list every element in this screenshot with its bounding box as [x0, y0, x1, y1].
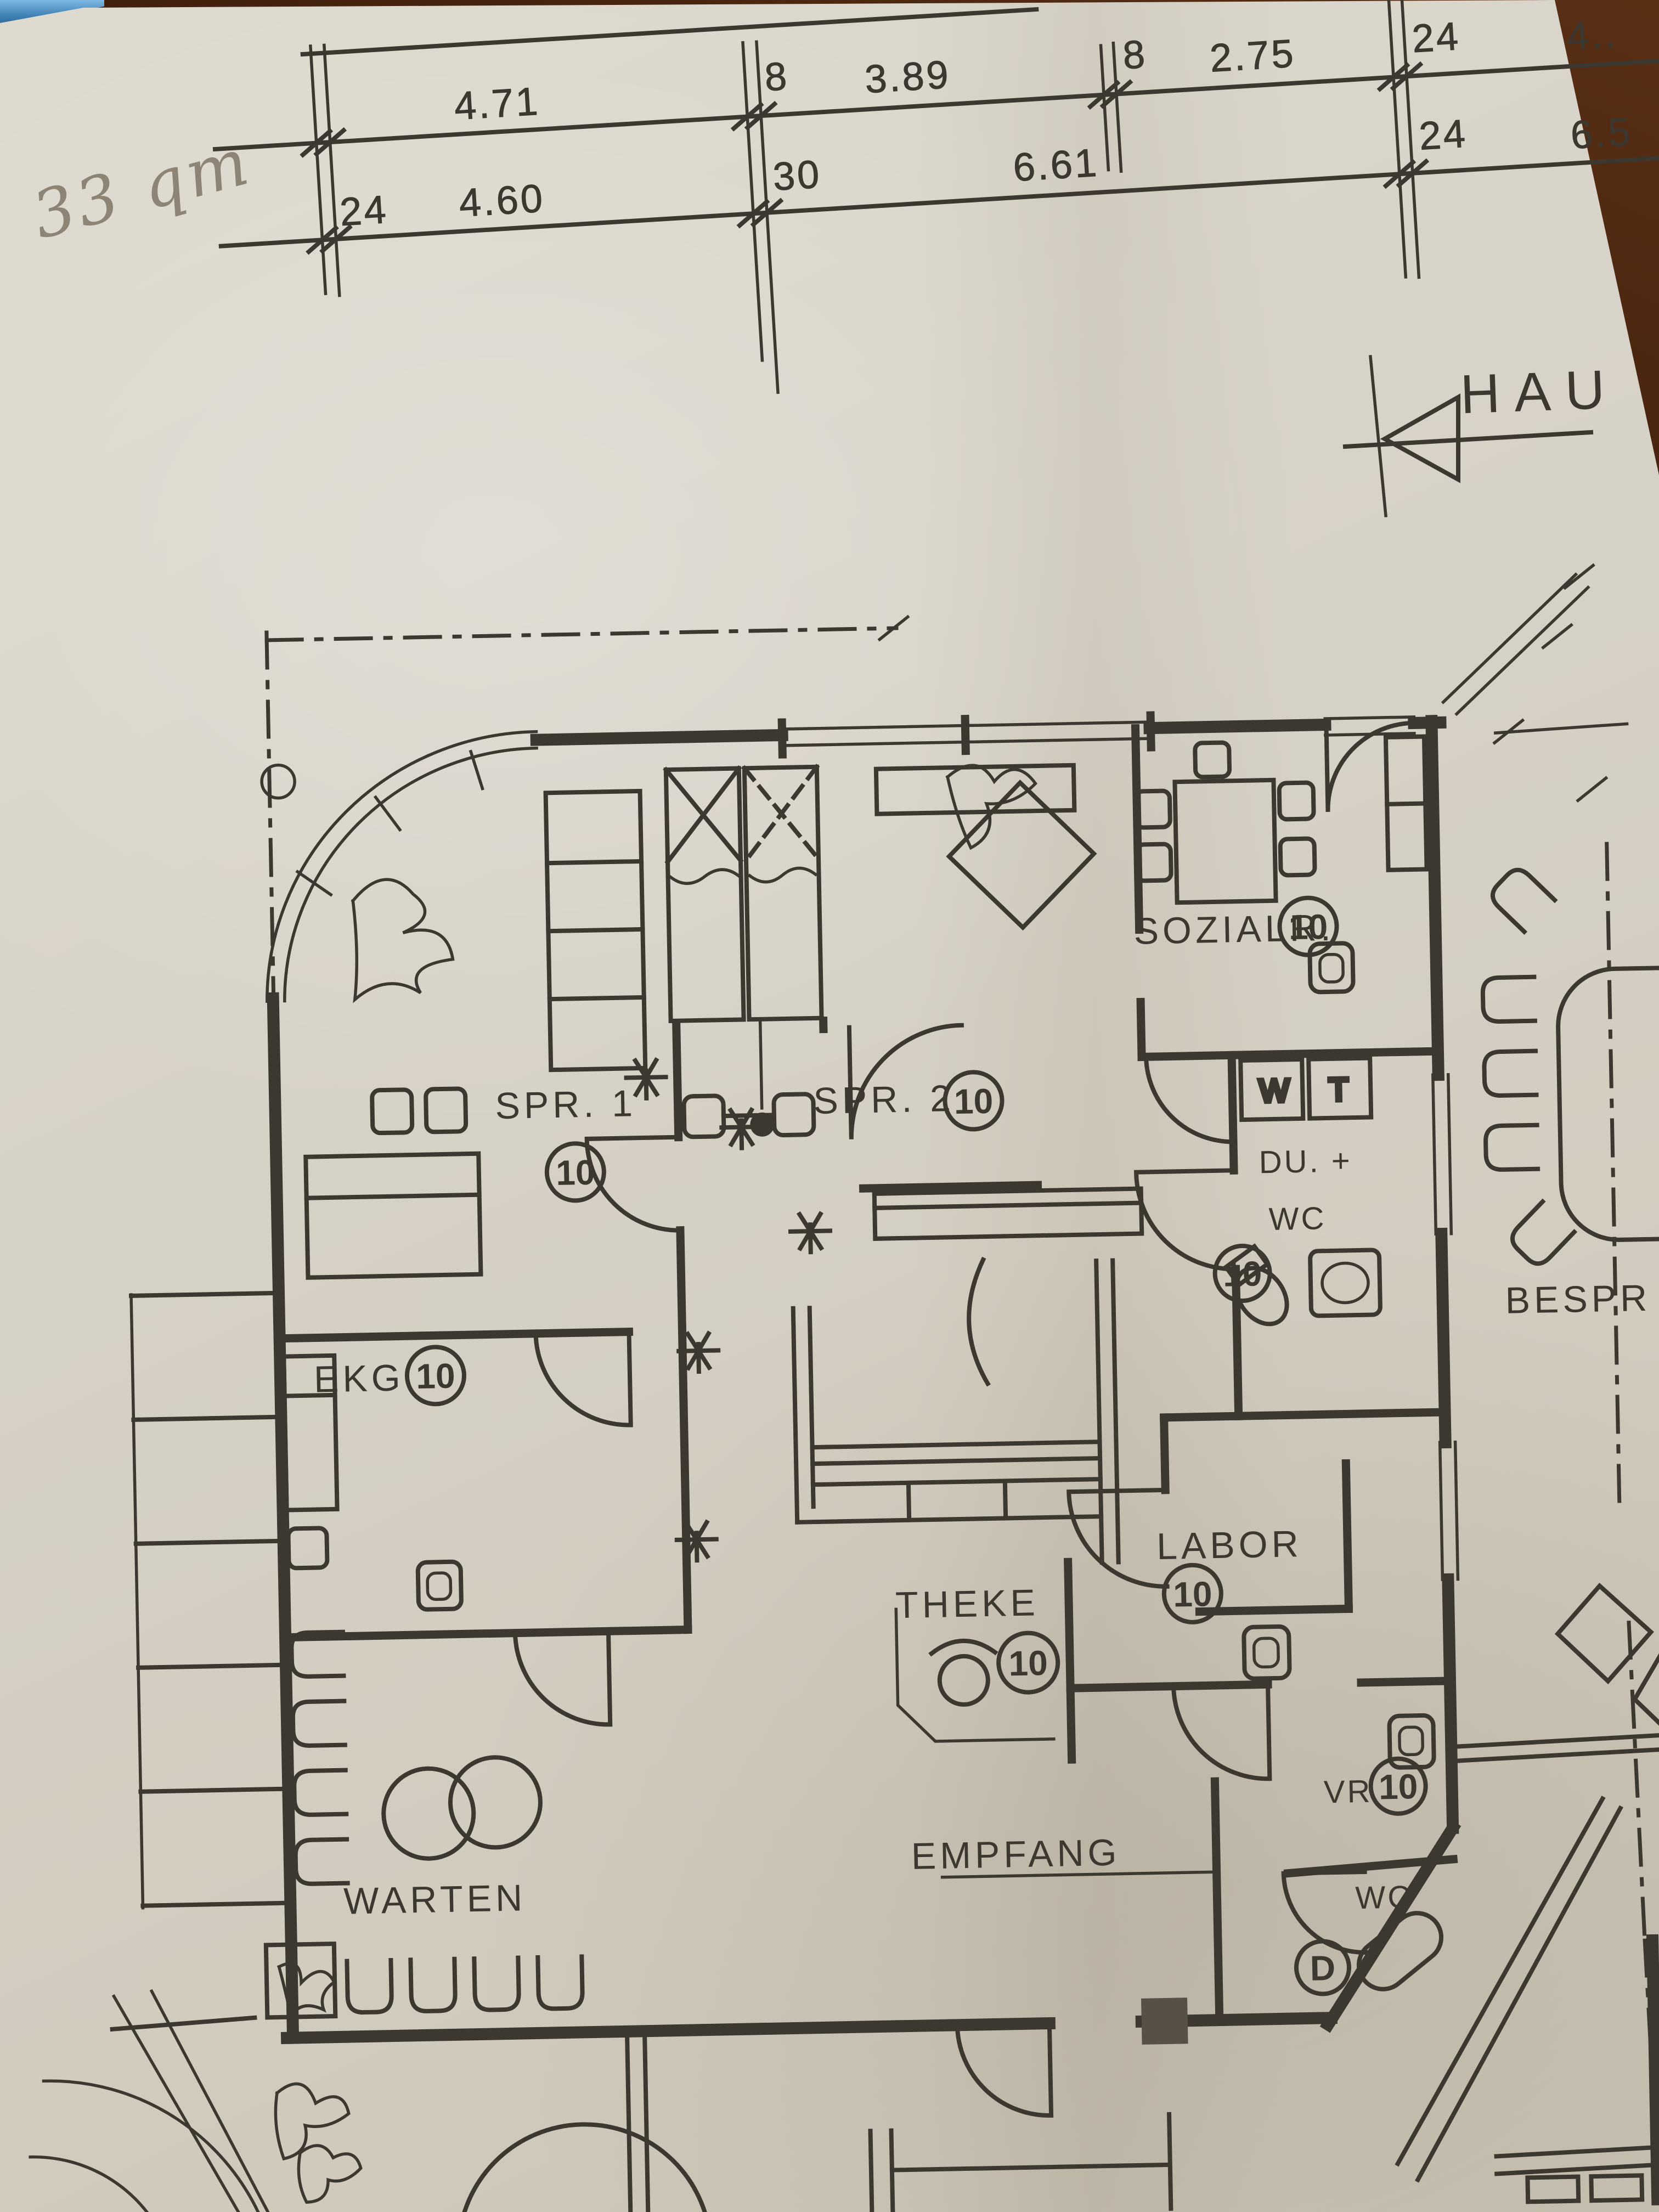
room-label-vr: VR — [1323, 1774, 1373, 1810]
room-label-du-wc: WC — [1268, 1200, 1327, 1237]
svg-text:10: 10 — [556, 1153, 596, 1193]
plant-sketch — [947, 764, 1037, 848]
room-label-bespr: BESPR — [1505, 1277, 1651, 1322]
floorplan-drawing: 4.71 8 3.89 8 2.75 24 4.. 24 4.60 30 6.6… — [0, 0, 1659, 2212]
room-number-theke: 10 — [998, 1633, 1058, 1693]
svg-text:10: 10 — [1008, 1643, 1048, 1683]
room-number-vr: 10 — [1370, 1758, 1426, 1814]
dim-row1-1: 8 — [764, 54, 791, 100]
dim-row2-1: 4.60 — [458, 176, 546, 225]
svg-text:10: 10 — [1288, 907, 1328, 947]
plant-sketch — [298, 2145, 362, 2202]
dim-row1-3: 8 — [1121, 32, 1148, 78]
dim-row1-0: 4.71 — [453, 80, 541, 128]
entry-ramp — [1441, 565, 1628, 803]
room-label-wc-vr: WC — [1355, 1879, 1413, 1916]
svg-text:D: D — [1310, 1948, 1336, 1988]
hau-label: HAU — [1459, 358, 1620, 425]
reception-counter — [792, 1261, 1118, 1568]
handwritten-area-note: 33 qm — [25, 123, 259, 253]
dimension-chains: 4.71 8 3.89 8 2.75 24 4.. 24 4.60 30 6.6… — [209, 0, 1659, 426]
photo-of-floorplan: { "palette":{"paper":"#d8d3c8","ink":"#3… — [0, 0, 1659, 2212]
spr1-furniture — [299, 791, 650, 1278]
dryer-label: T — [1329, 1071, 1351, 1108]
dim-row1-2: 3.89 — [864, 53, 952, 101]
dim-row1-4: 2.75 — [1209, 31, 1297, 80]
room-label-theke: THEKE — [895, 1582, 1039, 1626]
plant-sketch — [353, 878, 454, 1000]
dim-row2-3: 6.61 — [1012, 141, 1100, 190]
sozialr-furniture — [1135, 737, 1429, 996]
room-label-ekg: EKG — [313, 1357, 404, 1400]
svg-text:10: 10 — [1378, 1767, 1418, 1807]
svg-text:10: 10 — [1173, 1574, 1213, 1614]
washer-dryer: W T — [1240, 1058, 1371, 1120]
room-number-labor: 10 — [1164, 1565, 1222, 1623]
dim-row2-5: 6.5 — [1570, 110, 1634, 157]
labor-fixtures — [1244, 1627, 1290, 1679]
svg-text:10: 10 — [953, 1081, 994, 1121]
theke-basin — [931, 1640, 996, 1705]
room-label-empfang: EMPFANG — [911, 1832, 1121, 1877]
room-number-spr1: 10 — [546, 1143, 605, 1201]
room-number-ekg: 10 — [407, 1346, 465, 1404]
dim-row2-0: 24 — [338, 188, 390, 234]
room-label-du: DU. + — [1259, 1143, 1352, 1180]
dim-row2-2: 30 — [772, 153, 823, 199]
svg-text:10: 10 — [416, 1356, 456, 1396]
spr2-furniture — [866, 762, 1142, 1238]
room-label-spr1: SPR. 1 — [495, 1082, 637, 1127]
dim-row1-5: 24 — [1410, 14, 1462, 61]
lower-cutoff-structures — [14, 1266, 1659, 2212]
room-number-du-wc: 10 — [1215, 1245, 1271, 1301]
washer-label: W — [1259, 1073, 1292, 1109]
room-label-labor: LABOR — [1156, 1523, 1302, 1567]
room-label-spr2: SPR. 2 — [813, 1077, 955, 1122]
svg-text:10: 10 — [1222, 1254, 1262, 1294]
changing-cubicles — [666, 767, 824, 1138]
floorplan: W T — [1, 563, 1659, 2212]
dim-row2-4: 24 — [1418, 112, 1469, 159]
room-letter-wc-vr: D — [1296, 1941, 1350, 1995]
room-label-warten: WARTEN — [343, 1877, 527, 1922]
dim-row1-6: 4.. — [1566, 12, 1619, 59]
